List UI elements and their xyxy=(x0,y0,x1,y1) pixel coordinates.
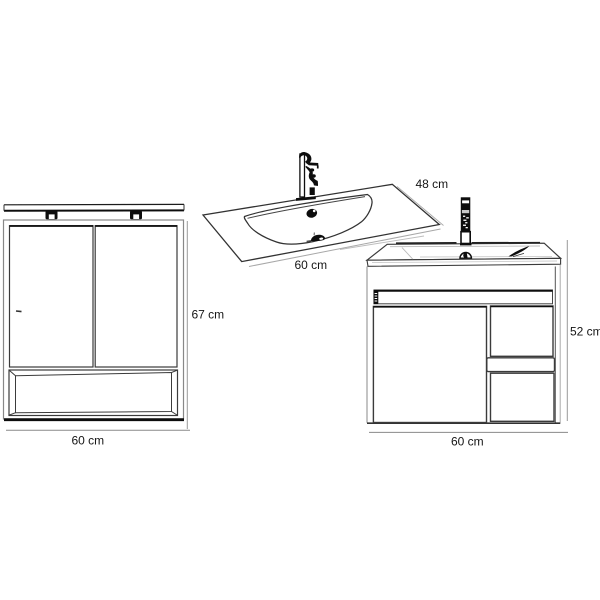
svg-text:60 cm: 60 cm xyxy=(72,434,105,448)
svg-text:60 cm: 60 cm xyxy=(295,258,328,272)
svg-text:52 cm: 52 cm xyxy=(570,324,600,338)
svg-text:60 cm: 60 cm xyxy=(451,435,484,449)
svg-text:48 cm: 48 cm xyxy=(416,177,449,191)
svg-text:67 cm: 67 cm xyxy=(192,307,225,321)
